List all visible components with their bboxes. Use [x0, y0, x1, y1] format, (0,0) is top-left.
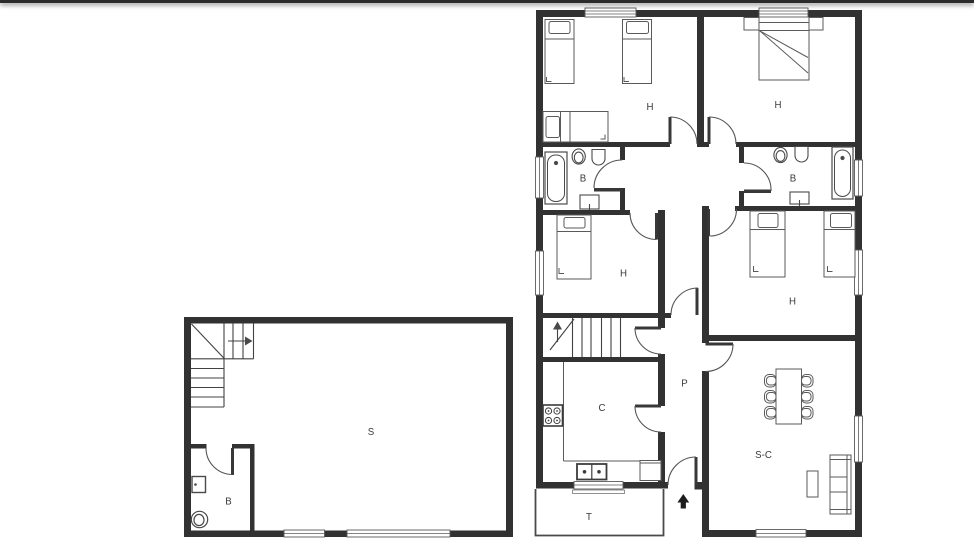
svg-text:S-C: S-C — [755, 450, 772, 461]
svg-text:H: H — [789, 297, 796, 308]
svg-text:C: C — [599, 403, 606, 414]
svg-text:S: S — [368, 427, 375, 438]
svg-text:B: B — [580, 174, 586, 185]
svg-text:H: H — [775, 100, 782, 111]
svg-text:B: B — [225, 497, 231, 508]
svg-text:P: P — [681, 379, 687, 390]
svg-text:H: H — [647, 102, 654, 113]
svg-text:T: T — [586, 512, 592, 523]
svg-text:B: B — [790, 174, 796, 185]
svg-text:H: H — [620, 269, 627, 280]
